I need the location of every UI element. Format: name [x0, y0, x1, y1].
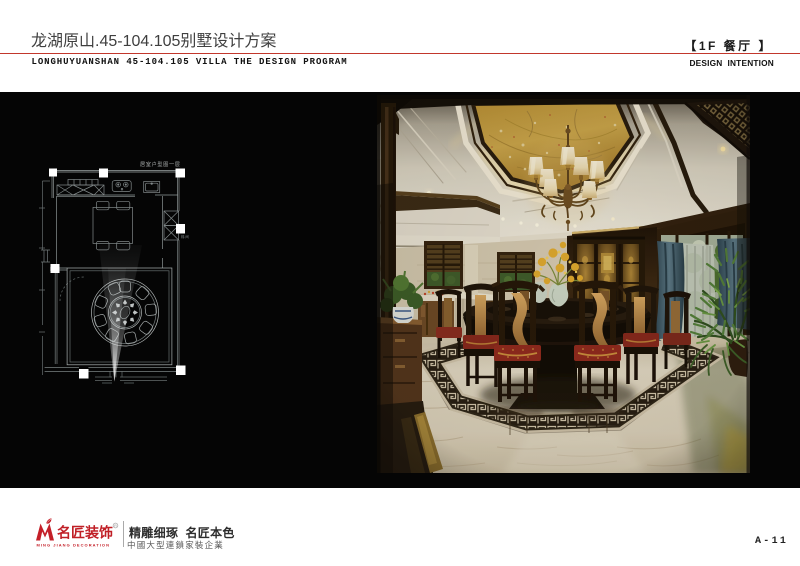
- svg-text:名匠装饰: 名匠装饰: [57, 525, 113, 541]
- svg-text:MING JIANG DECORATION: MING JIANG DECORATION: [37, 543, 111, 548]
- svg-text:梯 间: 梯 间: [181, 234, 189, 239]
- svg-text:居室户型图一层: 居室户型图一层: [140, 160, 181, 168]
- svg-text:R: R: [114, 524, 117, 528]
